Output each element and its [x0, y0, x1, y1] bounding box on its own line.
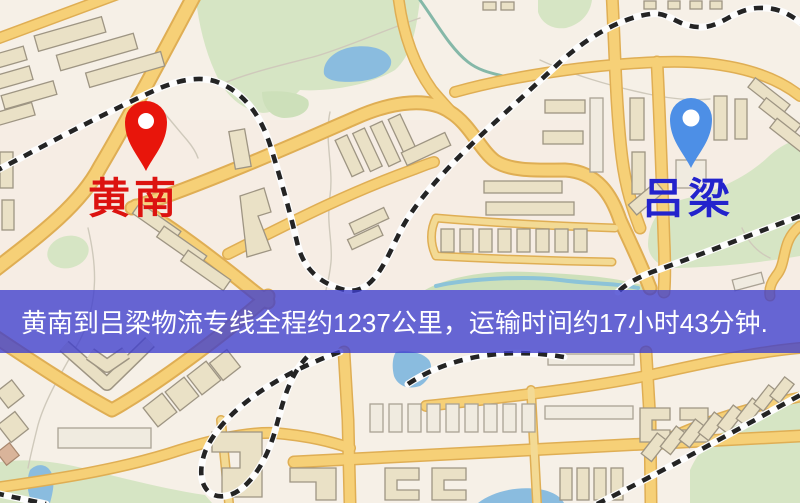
destination-city-label: 吕梁	[642, 178, 734, 220]
origin-city-label: 黄南	[88, 178, 180, 220]
route-info-banner: 黄南到吕梁物流专线全程约1237公里，运输时间约17小时43分钟.	[0, 290, 800, 353]
route-info-text: 黄南到吕梁物流专线全程约1237公里，运输时间约17小时43分钟.	[0, 303, 768, 340]
map-canvas	[0, 0, 800, 503]
map-screenshot: 黄南 吕梁 黄南到吕梁物流专线全程约1237公里，运输时间约17小时43分钟.	[0, 0, 800, 503]
